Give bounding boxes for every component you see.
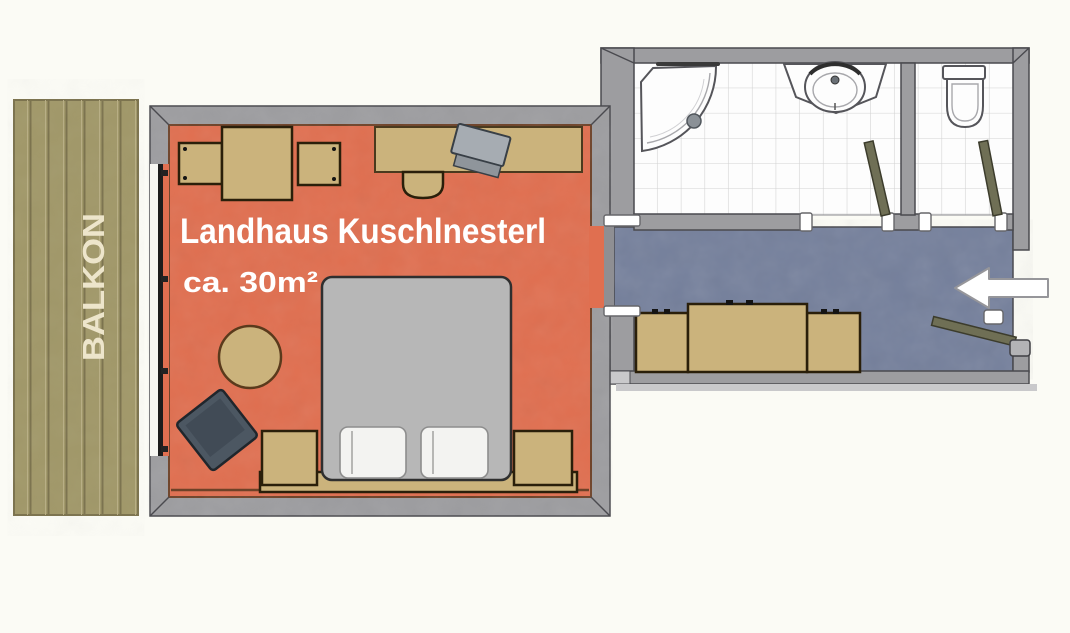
wc-divider-wall [901, 63, 915, 215]
room-hallway-jamb-top [604, 215, 640, 226]
bathroom-door-jamb-left [800, 213, 812, 231]
chair-left-knob [183, 176, 187, 180]
wardrobe-left-section [636, 313, 688, 372]
side-table-round [219, 326, 281, 388]
wing-top-wall [601, 48, 1029, 63]
room-hallway-opening [589, 226, 606, 308]
hallway-bottom-wall-cap [610, 371, 630, 384]
dining-table-icon [222, 127, 292, 200]
floorplan-page: BALKON [0, 0, 1070, 633]
pillow-left [340, 427, 406, 478]
hallway-bottom-wall-shadow [616, 384, 1037, 391]
washbasin-faucet [831, 76, 839, 84]
wardrobe-handle [664, 309, 670, 314]
nightstand-left [262, 431, 317, 485]
room-area-label: ca. 30m² [183, 267, 318, 299]
floorplan-canvas: BALKON [0, 0, 1070, 633]
wardrobe-handle [833, 309, 839, 314]
toilet-icon [943, 66, 985, 127]
sliding-door-glass [150, 164, 159, 456]
desk-chair [403, 172, 443, 198]
shower-drain [687, 114, 701, 128]
wardrobe-icon [636, 300, 860, 372]
toilet-tank [943, 66, 985, 79]
balcony: BALKON [14, 100, 138, 515]
chair-right-knob [332, 147, 336, 151]
room-hallway-sill [604, 226, 614, 308]
nightstand-right [514, 431, 572, 485]
entrance-door-handle [984, 310, 1003, 324]
wardrobe-handle [821, 309, 827, 314]
wc-door-jamb-left [919, 213, 931, 231]
room-hallway-jamb-bottom [604, 306, 640, 316]
wardrobe-right-section [807, 313, 860, 372]
main-room: Landhaus Kuschlnesterl ca. 30m² [150, 106, 640, 516]
pillow-right [421, 427, 488, 478]
wardrobe-handle [652, 309, 658, 314]
chair-right-knob [332, 177, 336, 181]
room-label: Landhaus Kuschlnesterl [180, 212, 546, 251]
hallway-left-wall-stub [610, 314, 634, 372]
wardrobe-handle [726, 300, 733, 305]
sliding-door-icon [150, 164, 169, 456]
balcony-label: BALKON [76, 213, 111, 361]
sliding-door-threshold [163, 164, 169, 456]
wardrobe-middle-section [688, 304, 807, 372]
bathroom-hall-wall-left [634, 214, 806, 230]
entrance-door-hinge-post [1010, 340, 1030, 356]
wing-right-wall-upper [1013, 48, 1029, 250]
wardrobe-handle [746, 300, 753, 305]
chair-left-knob [183, 147, 187, 151]
sliding-door-track [158, 164, 163, 456]
